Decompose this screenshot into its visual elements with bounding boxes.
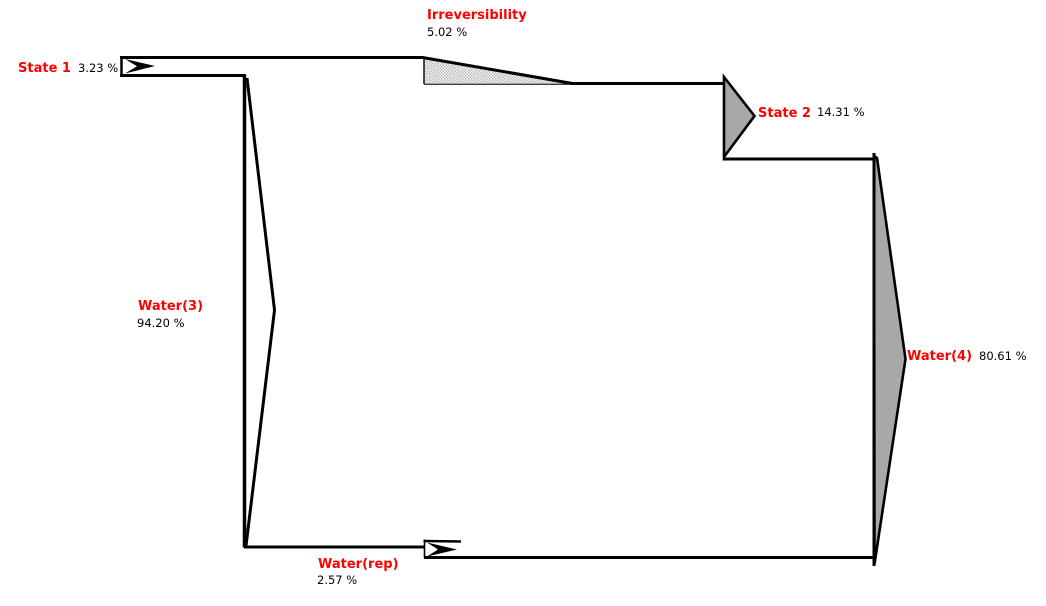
- state1-label: State 1: [18, 61, 71, 76]
- water4-label: Water(4): [907, 349, 972, 364]
- state1-arrowhead-icon: [125, 59, 155, 74]
- water4-arrow: [874, 156, 906, 564]
- state1-value: 3.23 %: [78, 62, 118, 75]
- water4-value: 80.61 %: [979, 350, 1027, 363]
- water3-value: 94.20 %: [137, 317, 185, 330]
- waterrep-value: 2.57 %: [317, 574, 357, 587]
- state2-value: 14.31 %: [817, 106, 865, 119]
- water3-stream-right-edge: [246, 78, 275, 546]
- waterrep-inlet-top-edge: [424, 541, 462, 542]
- state2-label: State 2: [758, 106, 811, 121]
- water3-label: Water(3): [138, 299, 203, 314]
- waterrep-label: Water(rep): [318, 557, 399, 572]
- irreversibility-value: 5.02 %: [427, 26, 467, 39]
- irreversibility-label: Irreversibility: [427, 8, 527, 23]
- waterrep-arrowhead-icon: [427, 543, 457, 557]
- grassmann-diagram: State 1 3.23 % Irreversibility 5.02 % St…: [0, 0, 1046, 606]
- state2-arrow: [724, 77, 755, 157]
